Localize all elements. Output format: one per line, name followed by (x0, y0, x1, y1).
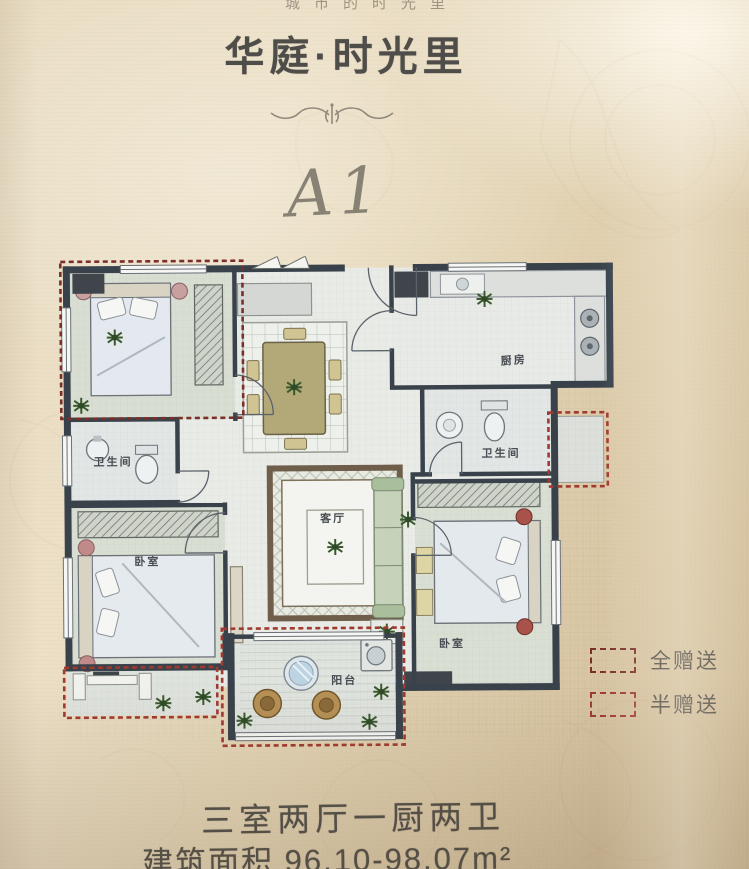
entry-pediment (252, 256, 309, 268)
legend-item-full-gift: 全赠送 (590, 645, 719, 675)
legend-swatch-half-gift (590, 692, 636, 717)
project-title: 华庭·时光里 (224, 24, 467, 82)
label-bedroom-right: 卧室 (439, 636, 465, 650)
building-area: 建筑面积 96.10-98.07m² (142, 832, 513, 869)
label-living: 客厅 (319, 511, 346, 525)
floor-plan: 卫生间 厨房 卫生间 客厅 卧室 卧室 阳台 (56, 254, 620, 768)
entry-cabinet (237, 283, 311, 316)
top-slogan: 城市的时光里 (285, 0, 459, 13)
legend-swatch-full-gift (590, 648, 636, 673)
flyer-photo: 城市的时光里 华庭·时光里 A1 (0, 0, 749, 869)
flourish-icon (267, 100, 397, 130)
washing-machine (361, 640, 392, 671)
label-bath-right: 卫生间 (482, 446, 521, 460)
tv-console (230, 567, 243, 643)
legend-label-full-gift: 全赠送 (650, 645, 719, 675)
legend-label-half-gift: 半赠送 (650, 689, 719, 719)
label-bath-top-left: 卫生间 (94, 454, 133, 468)
legend-item-half-gift: 半赠送 (590, 689, 719, 719)
label-balcony: 阳台 (331, 673, 357, 687)
bed-bottom-left (78, 511, 219, 672)
bed-top-left (72, 273, 223, 396)
plan-code: A1 (285, 153, 388, 232)
label-bedroom-left: 卧室 (134, 554, 160, 568)
